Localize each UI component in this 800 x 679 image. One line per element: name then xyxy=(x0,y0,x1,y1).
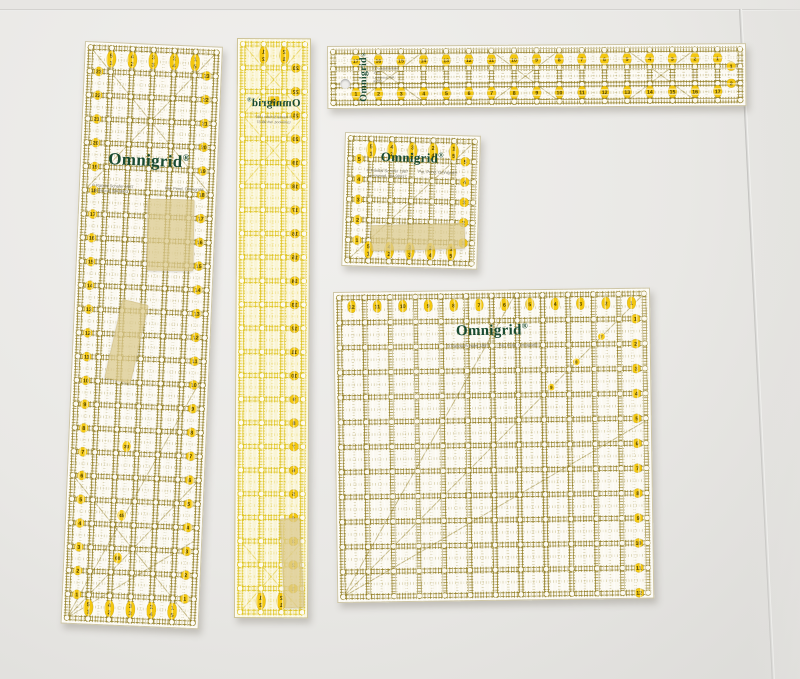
svg-text:7: 7 xyxy=(490,91,493,97)
svg-text:6: 6 xyxy=(603,57,606,63)
svg-text:9: 9 xyxy=(293,397,296,403)
tape-patch xyxy=(146,199,194,272)
svg-text:1: 1 xyxy=(716,56,719,62)
svg-text:13: 13 xyxy=(624,90,630,96)
svg-text:3: 3 xyxy=(462,200,465,206)
fine-print: © Randal Schafer 1987Lynnwood, WA 98037 xyxy=(373,66,399,83)
svg-text:22: 22 xyxy=(202,98,208,104)
svg-text:11: 11 xyxy=(84,355,90,361)
svg-text:6: 6 xyxy=(503,303,506,309)
svg-text:9: 9 xyxy=(427,304,430,310)
svg-text:1: 1 xyxy=(262,50,265,56)
svg-text:1: 1 xyxy=(75,592,78,598)
svg-text:13: 13 xyxy=(194,312,200,318)
board-seam-top xyxy=(0,9,800,11)
svg-text:2: 2 xyxy=(387,252,390,258)
svg-text:11: 11 xyxy=(579,90,585,96)
svg-text:8: 8 xyxy=(558,57,561,63)
svg-text:16: 16 xyxy=(197,240,203,246)
svg-text:2: 2 xyxy=(259,603,262,609)
svg-text:6: 6 xyxy=(292,468,295,474)
svg-text:11: 11 xyxy=(375,304,381,310)
svg-text:17: 17 xyxy=(90,212,96,218)
svg-text:16: 16 xyxy=(89,236,95,242)
svg-text:4: 4 xyxy=(186,526,189,532)
svg-text:5: 5 xyxy=(110,54,113,60)
fine-print: © Randal Schafer 1987Lynnwood, WA 98037 xyxy=(238,115,310,125)
svg-text:20: 20 xyxy=(93,141,99,147)
svg-text:16: 16 xyxy=(692,89,698,95)
svg-text:2: 2 xyxy=(262,57,265,63)
svg-text:5: 5 xyxy=(528,302,531,308)
svg-text:10: 10 xyxy=(400,304,406,310)
svg-text:12: 12 xyxy=(85,331,91,337)
svg-text:1: 1 xyxy=(109,61,112,67)
svg-text:17: 17 xyxy=(198,216,204,222)
svg-text:12: 12 xyxy=(193,335,199,341)
svg-text:4: 4 xyxy=(78,521,81,527)
svg-text:3: 3 xyxy=(128,611,131,617)
board-right-shade xyxy=(748,0,800,679)
svg-text:3: 3 xyxy=(408,253,411,259)
tape-patch xyxy=(371,223,466,251)
svg-text:22: 22 xyxy=(95,93,101,99)
svg-text:12: 12 xyxy=(291,326,297,332)
svg-text:2: 2 xyxy=(605,301,608,307)
svg-text:5: 5 xyxy=(87,602,90,608)
svg-text:2: 2 xyxy=(730,81,733,87)
svg-text:1: 1 xyxy=(183,597,186,603)
svg-text:15: 15 xyxy=(88,259,94,265)
svg-text:2: 2 xyxy=(280,596,283,602)
svg-text:12: 12 xyxy=(602,90,608,96)
photo-scene: 5142332415514233241523222120191817161514… xyxy=(0,0,800,679)
svg-text:15: 15 xyxy=(670,90,676,96)
svg-text:11: 11 xyxy=(192,359,198,365)
svg-text:15: 15 xyxy=(292,255,298,261)
svg-text:60: 60 xyxy=(115,556,121,562)
svg-text:1: 1 xyxy=(730,64,733,70)
svg-text:14: 14 xyxy=(421,58,427,64)
svg-text:7: 7 xyxy=(292,445,295,451)
svg-text:1: 1 xyxy=(355,238,358,244)
svg-text:15: 15 xyxy=(398,58,404,64)
svg-text:6: 6 xyxy=(188,478,191,484)
svg-text:7: 7 xyxy=(478,303,481,309)
svg-text:1: 1 xyxy=(194,57,197,63)
svg-text:5: 5 xyxy=(449,254,452,260)
svg-text:3: 3 xyxy=(185,549,188,555)
svg-text:1: 1 xyxy=(367,251,370,257)
svg-text:2: 2 xyxy=(173,56,176,62)
brand-logo: Omnigrid® xyxy=(358,53,369,102)
svg-text:23: 23 xyxy=(293,66,299,72)
svg-text:3: 3 xyxy=(400,91,403,97)
svg-text:10: 10 xyxy=(636,541,642,547)
svg-text:8: 8 xyxy=(82,426,85,432)
svg-text:1: 1 xyxy=(86,609,89,615)
svg-text:1: 1 xyxy=(259,596,262,602)
svg-text:5: 5 xyxy=(79,497,82,503)
svg-text:3: 3 xyxy=(671,57,674,63)
svg-text:7: 7 xyxy=(580,57,583,63)
svg-text:13: 13 xyxy=(292,303,298,309)
svg-text:14: 14 xyxy=(647,90,653,96)
svg-text:11: 11 xyxy=(489,58,495,64)
svg-text:1: 1 xyxy=(280,603,283,609)
svg-text:10: 10 xyxy=(511,58,517,64)
svg-text:9: 9 xyxy=(637,516,640,522)
svg-text:12: 12 xyxy=(466,58,472,64)
wall-strip xyxy=(0,0,800,9)
brand-logo-mirrored: Omnigrid® xyxy=(238,97,310,109)
svg-text:1: 1 xyxy=(630,301,633,307)
fine-print: © Randal Schafer 1987Lynnwood, WA 98037 xyxy=(92,182,134,195)
svg-text:8: 8 xyxy=(513,91,516,97)
svg-text:5: 5 xyxy=(367,244,370,250)
svg-text:2: 2 xyxy=(150,605,153,611)
svg-text:2: 2 xyxy=(693,56,696,62)
svg-text:4: 4 xyxy=(422,91,425,97)
svg-text:5: 5 xyxy=(187,502,190,508)
svg-text:5: 5 xyxy=(626,57,629,63)
svg-text:8: 8 xyxy=(190,430,193,436)
svg-text:1: 1 xyxy=(171,606,174,612)
svg-text:18: 18 xyxy=(198,193,204,199)
svg-text:3: 3 xyxy=(129,604,132,610)
svg-text:4: 4 xyxy=(554,302,557,308)
ruler-horizontal: 1716151413121110987654321123456789101112… xyxy=(327,43,746,109)
svg-text:5: 5 xyxy=(445,91,448,97)
svg-text:11: 11 xyxy=(291,350,297,356)
svg-text:22: 22 xyxy=(293,90,299,96)
svg-text:3: 3 xyxy=(77,545,80,551)
svg-text:7: 7 xyxy=(189,454,192,460)
svg-text:4: 4 xyxy=(648,57,651,63)
svg-text:8: 8 xyxy=(292,421,295,427)
svg-text:23: 23 xyxy=(203,74,209,80)
svg-text:16: 16 xyxy=(375,59,381,65)
svg-text:5: 5 xyxy=(193,64,196,70)
svg-text:14: 14 xyxy=(195,288,201,294)
svg-text:17: 17 xyxy=(715,89,721,95)
svg-text:15: 15 xyxy=(196,264,202,270)
svg-text:6: 6 xyxy=(636,441,639,447)
svg-text:18: 18 xyxy=(292,184,298,190)
svg-text:9: 9 xyxy=(535,91,538,97)
svg-text:7: 7 xyxy=(636,466,639,472)
svg-text:3: 3 xyxy=(579,302,582,308)
svg-text:10: 10 xyxy=(291,374,297,380)
svg-text:8: 8 xyxy=(452,303,455,309)
svg-text:9: 9 xyxy=(191,407,194,413)
svg-text:5: 5 xyxy=(292,492,295,498)
hang-hole xyxy=(340,79,350,89)
svg-text:13: 13 xyxy=(443,58,449,64)
svg-text:2: 2 xyxy=(377,92,380,98)
svg-text:2: 2 xyxy=(356,218,359,224)
svg-text:9: 9 xyxy=(535,58,538,64)
svg-text:20: 20 xyxy=(200,145,206,151)
svg-text:14: 14 xyxy=(87,283,93,289)
svg-text:6: 6 xyxy=(468,91,471,97)
svg-text:9: 9 xyxy=(83,402,86,408)
svg-text:2: 2 xyxy=(283,50,286,56)
svg-text:1: 1 xyxy=(354,92,357,98)
svg-text:1: 1 xyxy=(283,57,286,63)
svg-text:3: 3 xyxy=(635,367,638,373)
svg-text:11: 11 xyxy=(636,566,642,572)
svg-text:10: 10 xyxy=(83,378,89,384)
svg-text:13: 13 xyxy=(86,307,92,313)
svg-text:4: 4 xyxy=(635,391,638,397)
svg-text:19: 19 xyxy=(292,161,298,167)
svg-text:2: 2 xyxy=(107,610,110,616)
svg-text:17: 17 xyxy=(292,208,298,214)
svg-text:20: 20 xyxy=(292,137,298,143)
svg-text:7: 7 xyxy=(81,450,84,456)
svg-text:3: 3 xyxy=(151,63,154,69)
svg-text:12: 12 xyxy=(636,591,642,597)
svg-text:10: 10 xyxy=(191,383,197,389)
svg-text:5: 5 xyxy=(170,613,173,619)
svg-text:5: 5 xyxy=(635,416,638,422)
svg-text:2: 2 xyxy=(184,573,187,579)
svg-text:10: 10 xyxy=(557,90,563,96)
ruler-big-square: 121110987654321123456789101112987 Omnigr… xyxy=(333,288,654,603)
svg-text:23: 23 xyxy=(96,69,102,75)
svg-text:14: 14 xyxy=(292,279,298,285)
svg-text:3: 3 xyxy=(357,197,360,203)
svg-text:12: 12 xyxy=(349,305,355,311)
svg-text:21: 21 xyxy=(94,117,100,123)
svg-text:8: 8 xyxy=(636,491,639,497)
svg-text:30: 30 xyxy=(124,444,130,450)
svg-text:16: 16 xyxy=(292,232,298,238)
svg-text:2: 2 xyxy=(130,62,133,68)
svg-text:21: 21 xyxy=(201,121,207,127)
svg-text:45: 45 xyxy=(119,513,125,519)
svg-text:6: 6 xyxy=(80,473,83,479)
svg-text:3: 3 xyxy=(152,55,155,61)
svg-text:2: 2 xyxy=(76,569,79,575)
